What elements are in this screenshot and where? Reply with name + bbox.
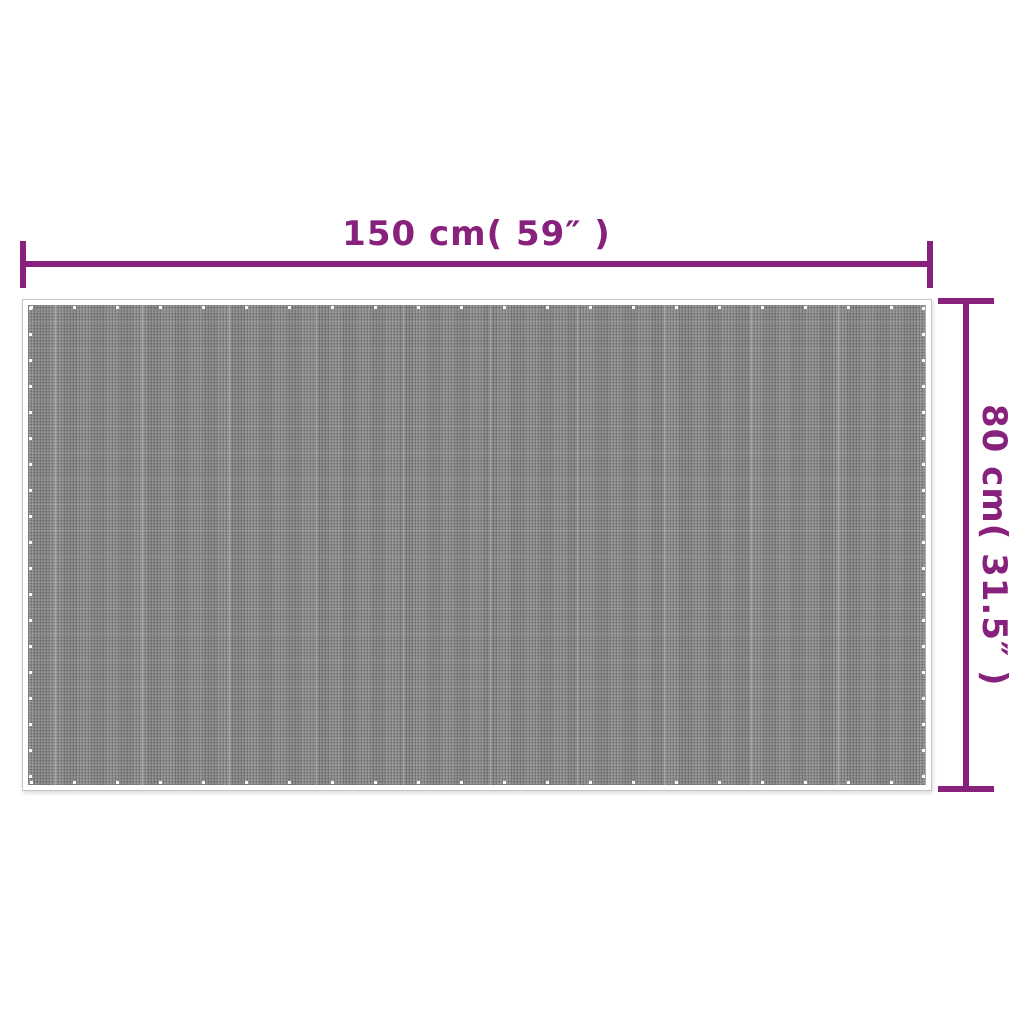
height-dimension-line — [963, 301, 969, 790]
mat-mesh-texture — [28, 305, 926, 785]
height-dimension-label: 80 cm( 31.5″ ) — [974, 404, 1014, 687]
width-dimension-line — [23, 261, 930, 267]
width-dimension-label: 150 cm( 59″ ) — [23, 215, 930, 253]
mat-top-edge-stitching — [30, 306, 924, 309]
mat-left-edge-stitching — [29, 307, 32, 783]
mat-right-edge-stitching — [922, 307, 925, 783]
mesh-mat-product — [22, 299, 932, 791]
mat-bottom-edge-stitching — [30, 781, 924, 784]
width-dimension-left-end-cap — [20, 241, 26, 288]
width-dimension-right-end-cap — [927, 241, 933, 288]
height-dimension-label-container: 80 cm( 31.5″ ) — [974, 301, 1014, 790]
product-dimension-diagram: 150 cm( 59″ ) 80 cm( 31.5″ ) — [0, 0, 1024, 1024]
